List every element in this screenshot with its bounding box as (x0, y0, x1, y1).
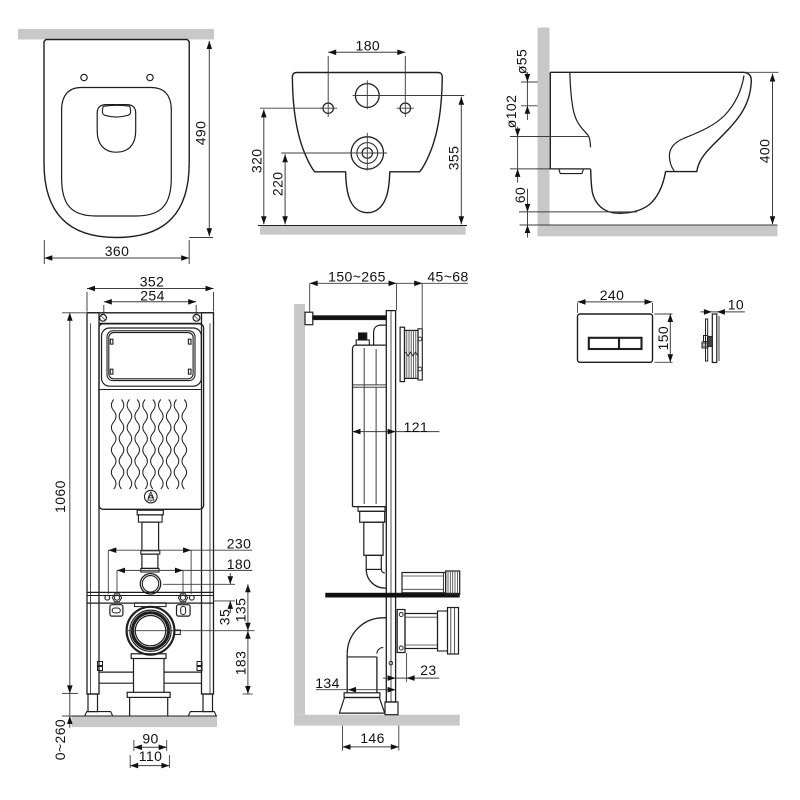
svg-text:150: 150 (655, 326, 671, 351)
svg-text:400: 400 (756, 139, 772, 164)
svg-text:60: 60 (512, 187, 528, 203)
svg-text:230: 230 (227, 536, 252, 552)
svg-text:146: 146 (360, 730, 385, 746)
svg-text:220: 220 (270, 172, 286, 197)
svg-text:90: 90 (142, 731, 158, 747)
svg-text:110: 110 (139, 748, 163, 764)
svg-text:183: 183 (233, 651, 249, 676)
svg-text:10: 10 (728, 296, 744, 312)
svg-text:0~260: 0~260 (52, 719, 68, 760)
svg-text:150~265: 150~265 (328, 269, 386, 285)
svg-text:23: 23 (420, 662, 436, 678)
svg-text:490: 490 (192, 121, 208, 146)
svg-text:134: 134 (315, 675, 340, 691)
svg-text:240: 240 (600, 287, 625, 303)
svg-text:320: 320 (248, 149, 264, 174)
svg-text:35: 35 (216, 609, 232, 625)
svg-text:ø55: ø55 (513, 49, 529, 74)
svg-text:135: 135 (233, 598, 249, 623)
svg-text:360: 360 (105, 243, 130, 259)
svg-text:ø102: ø102 (503, 95, 519, 129)
svg-text:180: 180 (227, 556, 252, 572)
svg-text:1060: 1060 (52, 480, 68, 513)
svg-text:355: 355 (445, 146, 461, 171)
svg-text:121: 121 (404, 419, 429, 435)
svg-text:180: 180 (356, 37, 381, 53)
svg-text:45~68: 45~68 (427, 269, 468, 285)
svg-text:254: 254 (140, 287, 165, 303)
